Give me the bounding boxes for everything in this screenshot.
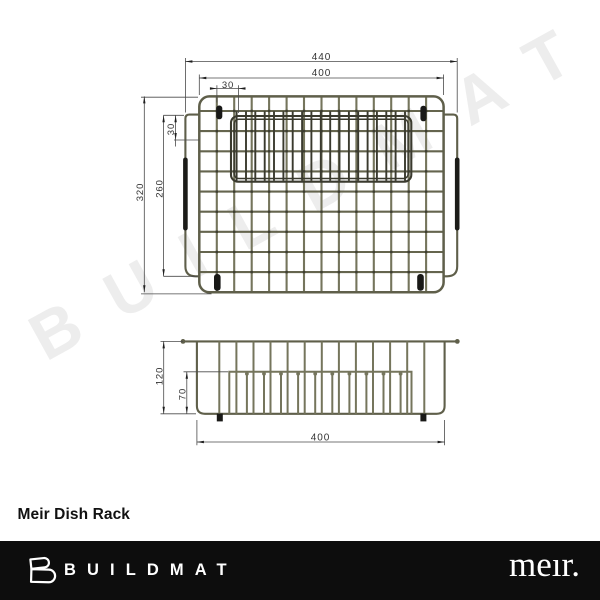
svg-text:400: 400 — [312, 68, 331, 79]
svg-text:120: 120 — [155, 367, 166, 386]
svg-text:30: 30 — [222, 80, 234, 91]
svg-text:440: 440 — [312, 52, 331, 63]
svg-text:260: 260 — [154, 179, 165, 198]
svg-text:320: 320 — [135, 183, 146, 202]
svg-text:30: 30 — [166, 123, 177, 135]
svg-text:400: 400 — [311, 432, 330, 443]
svg-text:70: 70 — [178, 388, 189, 400]
